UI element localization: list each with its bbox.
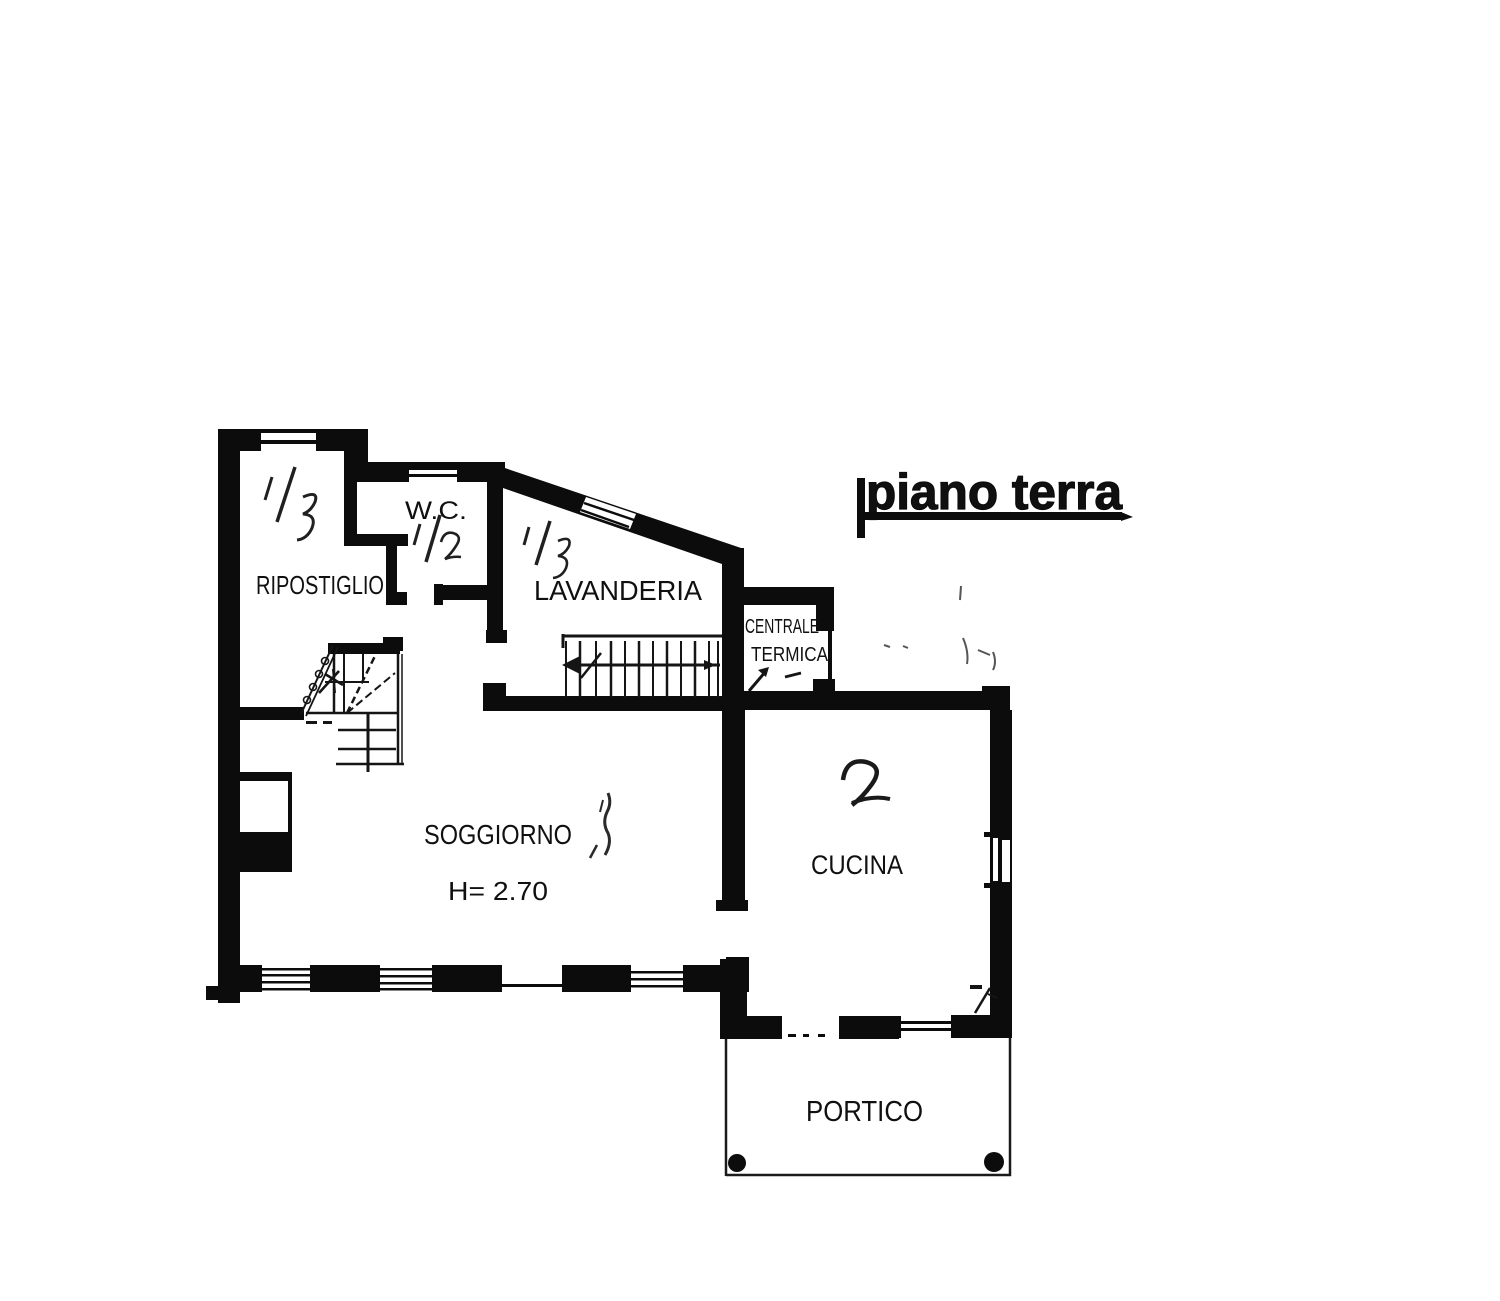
svg-text:PORTICO: PORTICO xyxy=(806,1096,923,1128)
svg-text:H= 2.70: H= 2.70 xyxy=(448,876,548,906)
svg-text:LAVANDERIA: LAVANDERIA xyxy=(534,575,702,606)
svg-text:TERMICA: TERMICA xyxy=(751,644,829,666)
svg-text:W.C.: W.C. xyxy=(405,497,467,525)
svg-text:piano terra: piano terra xyxy=(866,464,1123,520)
svg-text:CUCINA: CUCINA xyxy=(811,850,903,880)
svg-text:CENTRALE: CENTRALE xyxy=(745,616,819,638)
svg-text:RIPOSTIGLIO: RIPOSTIGLIO xyxy=(256,570,384,600)
svg-text:SOGGIORNO: SOGGIORNO xyxy=(424,819,572,850)
